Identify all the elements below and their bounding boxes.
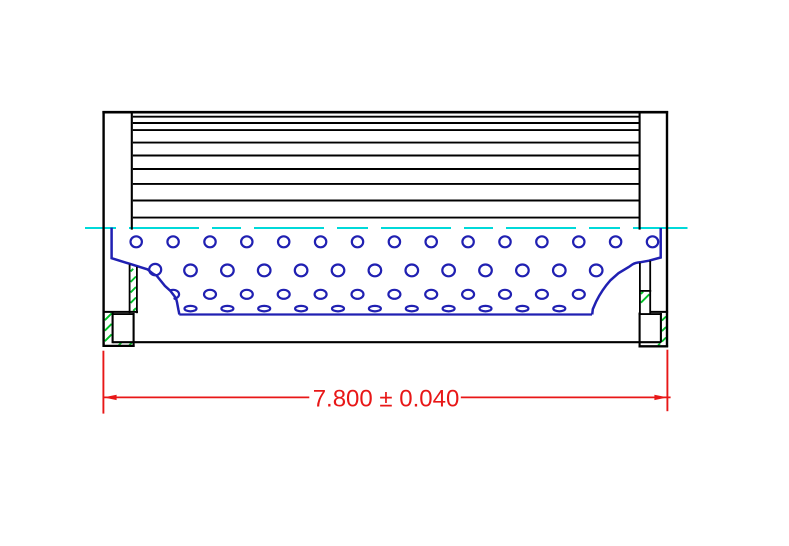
svg-text:7.800 ± 0.040: 7.800 ± 0.040 [313, 386, 460, 413]
